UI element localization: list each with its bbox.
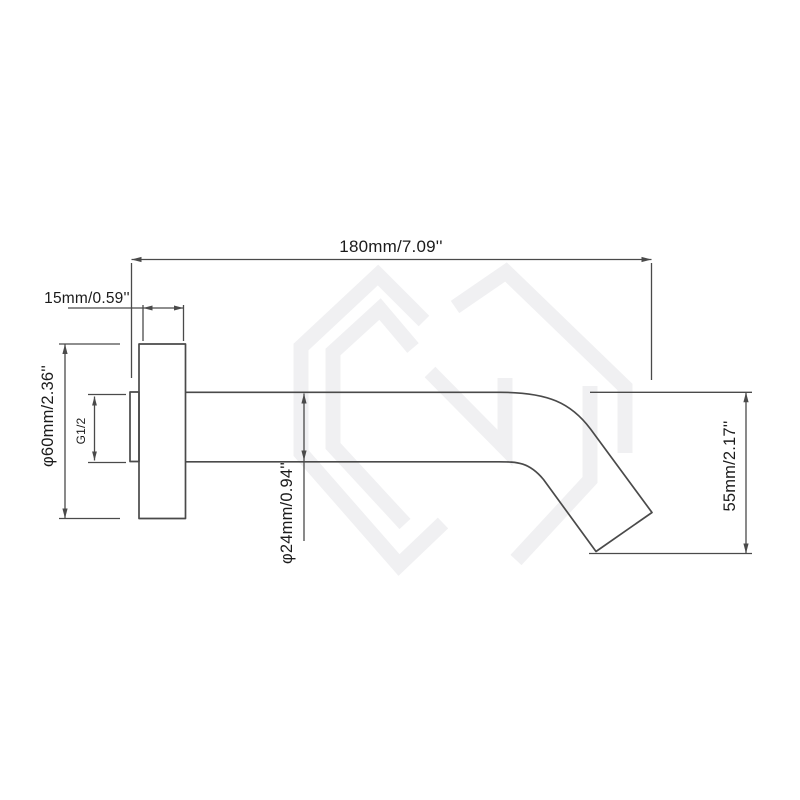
watermark-hexagon-logo-icon (301, 272, 625, 565)
thread-stub (130, 392, 139, 462)
arrowhead-icon (62, 344, 67, 354)
arrowhead-icon (642, 257, 652, 262)
drawing-canvas: 180mm/7.09'' 15mm/0.59'' φ60mm/2.36'' (0, 0, 800, 800)
arrowhead-icon (743, 544, 748, 554)
watermark-stroke (516, 386, 590, 560)
dim-thread-size: G1/2 (74, 395, 126, 463)
watermark-stroke (430, 372, 505, 448)
dim-flange-thickness: 15mm/0.59'' (44, 290, 183, 341)
dim-label-spout-diameter: φ24mm/0.94'' (278, 462, 296, 564)
dim-label-spout-drop: 55mm/2.17'' (721, 420, 739, 511)
arrowhead-icon (92, 397, 97, 406)
arrowhead-icon (143, 306, 153, 311)
arrowhead-icon (743, 392, 748, 402)
dim-label-thread-size: G1/2 (74, 417, 88, 444)
wall-flange (139, 344, 186, 519)
dim-label-flange-diameter: φ60mm/2.36'' (39, 365, 57, 467)
arrowhead-icon (92, 452, 97, 461)
technical-drawing-page: 180mm/7.09'' 15mm/0.59'' φ60mm/2.36'' (0, 0, 800, 800)
watermark-stroke (333, 309, 413, 524)
dim-spout-drop: 55mm/2.17'' (589, 392, 752, 553)
arrowhead-icon (62, 509, 67, 519)
spout-body (186, 392, 653, 551)
dim-overall-length: 180mm/7.09'' (132, 237, 652, 380)
arrowhead-icon (174, 306, 184, 311)
arrowhead-icon (132, 257, 142, 262)
dim-label-flange-thickness: 15mm/0.59'' (44, 290, 130, 307)
dim-label-overall-length: 180mm/7.09'' (339, 237, 442, 256)
spout-geometry (130, 344, 652, 552)
